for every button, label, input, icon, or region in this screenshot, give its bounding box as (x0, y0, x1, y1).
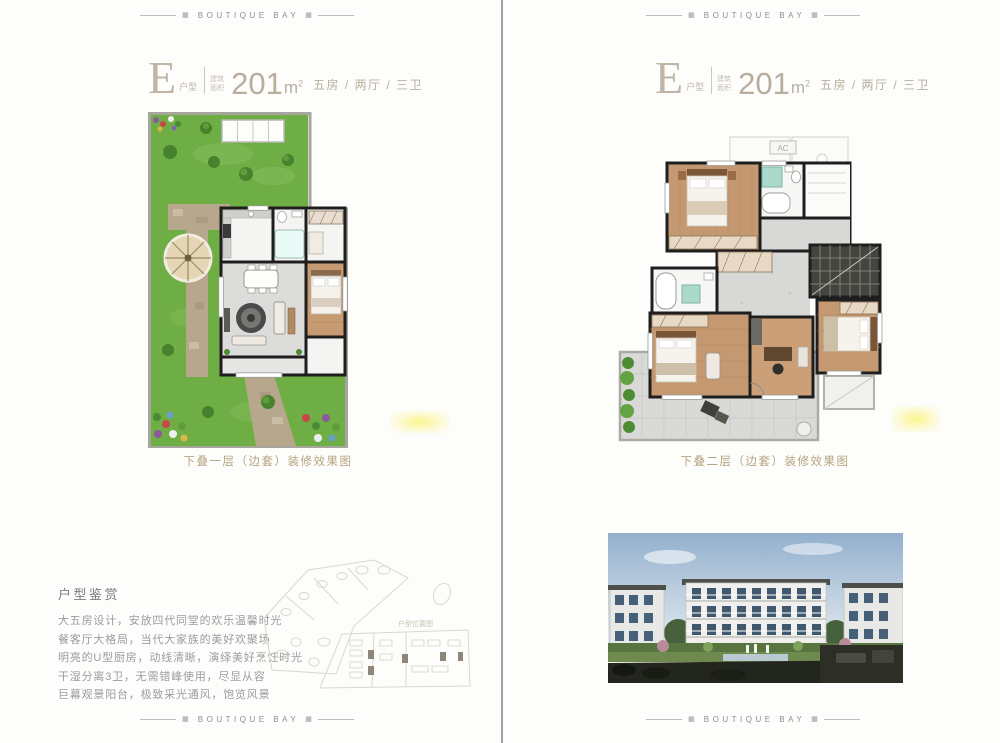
ornament-icon: ▦ (688, 12, 695, 19)
gazebo (165, 235, 211, 281)
area-note: 建筑面积 (717, 75, 731, 93)
unit-title-left: E 户型 建筑面积 201 m2 五房 / 两厅 / 三卫 (148, 56, 423, 96)
room-spec: 五房 / 两厅 / 三卫 (820, 76, 930, 93)
site-key-plan: 户型位置图 (256, 554, 480, 696)
closet-row (718, 252, 772, 272)
keyplan-label: 户型位置图 (398, 619, 433, 628)
header-left: ▦ BOUTIQUE BAY ▦ (140, 8, 354, 22)
floor-plan-upper-level: AC (612, 133, 902, 445)
brand-name: BOUTIQUE BAY (701, 11, 805, 20)
rooms (648, 161, 882, 409)
unit-letter: E (148, 60, 176, 96)
area-value: 201 (738, 71, 790, 96)
footer-rule-right (824, 719, 860, 720)
footer-rule-left (646, 719, 682, 720)
footer-rule-right (318, 719, 354, 720)
area-value: 201 (231, 71, 283, 96)
ornament-icon: ▦ (811, 12, 818, 19)
header-rule-left (140, 15, 176, 16)
footer-left: ▦ BOUTIQUE BAY ▦ (140, 712, 354, 726)
brand-name: BOUTIQUE BAY (195, 715, 299, 724)
ornament-icon: ▦ (688, 716, 695, 723)
caption-level2: 下叠二层（边套）装修效果图 (645, 453, 885, 469)
bathroom-left (652, 268, 717, 313)
header-rule-left (646, 15, 682, 16)
room-spec: 五房 / 两厅 / 三卫 (313, 76, 423, 93)
area-unit: m2 (284, 79, 303, 96)
unit-letter-suffix: 户型 (686, 80, 704, 93)
bathroom-top (760, 165, 804, 218)
unit-letter-suffix: 户型 (179, 80, 197, 93)
title-divider (711, 67, 712, 94)
caption-level1: 下叠一层（边套）装修效果图 (148, 453, 388, 469)
brand-name: BOUTIQUE BAY (701, 715, 805, 724)
floor-plan-lower-level (148, 112, 388, 448)
header-rule-right (824, 15, 860, 16)
photo-buildings (608, 579, 903, 649)
unit-title-right: E 户型 建筑面积 201 m2 五房 / 两厅 / 三卫 (655, 56, 930, 96)
balcony-right (824, 376, 874, 409)
ac-label: AC (777, 144, 788, 153)
study-room (750, 317, 813, 397)
ornament-icon: ▦ (182, 12, 189, 19)
ornament-icon: ▦ (811, 716, 818, 723)
unit-letter: E (655, 60, 683, 96)
storage-room (804, 165, 850, 218)
title-divider (204, 67, 205, 94)
ornament-icon: ▦ (305, 12, 312, 19)
area-note: 建筑面积 (210, 75, 224, 93)
area-unit: m2 (791, 79, 810, 96)
footer-right: ▦ BOUTIQUE BAY ▦ (646, 712, 860, 726)
stairs (810, 245, 880, 297)
bedroom-third (817, 300, 880, 373)
footer-rule-left (140, 719, 176, 720)
brand-name: BOUTIQUE BAY (195, 11, 299, 20)
page-seam (501, 0, 503, 743)
header-right: ▦ BOUTIQUE BAY ▦ (646, 8, 860, 22)
pergola (222, 120, 284, 142)
bedroom-second (650, 313, 750, 397)
ornament-icon: ▦ (182, 716, 189, 723)
print-smudge (892, 406, 940, 432)
indoor-area (219, 206, 347, 377)
building-rendering-photo (608, 533, 903, 683)
bedroom (311, 270, 341, 314)
ornament-icon: ▦ (305, 716, 312, 723)
header-rule-right (318, 15, 354, 16)
print-smudge (391, 411, 449, 433)
